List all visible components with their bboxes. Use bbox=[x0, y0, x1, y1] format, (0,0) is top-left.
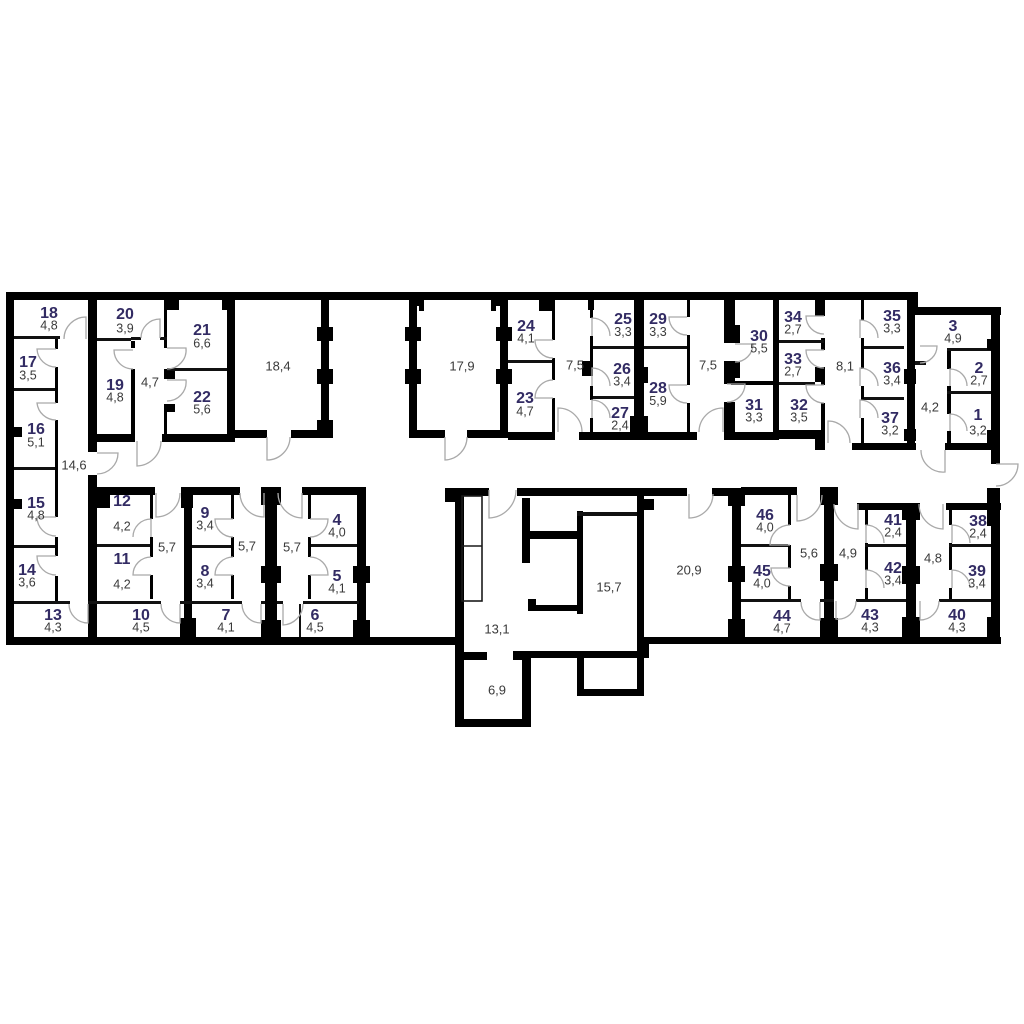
svg-text:11: 11 bbox=[114, 551, 131, 568]
svg-text:4,1: 4,1 bbox=[517, 332, 534, 346]
svg-text:5,6: 5,6 bbox=[193, 403, 210, 417]
svg-text:4,7: 4,7 bbox=[773, 622, 790, 636]
svg-text:3,4: 3,4 bbox=[884, 574, 901, 588]
svg-text:2,7: 2,7 bbox=[784, 323, 801, 337]
svg-text:4,0: 4,0 bbox=[756, 521, 773, 535]
svg-text:3,4: 3,4 bbox=[883, 374, 900, 388]
svg-text:2,7: 2,7 bbox=[970, 374, 987, 388]
svg-text:3,5: 3,5 bbox=[790, 411, 807, 425]
svg-text:3,2: 3,2 bbox=[881, 424, 898, 438]
svg-text:4,0: 4,0 bbox=[753, 577, 770, 591]
svg-text:2,4: 2,4 bbox=[884, 526, 901, 540]
svg-text:2,4: 2,4 bbox=[611, 419, 628, 433]
svg-text:18,4: 18,4 bbox=[265, 359, 290, 374]
svg-text:3,3: 3,3 bbox=[649, 325, 666, 339]
svg-text:4,9: 4,9 bbox=[839, 546, 857, 561]
svg-text:4,8: 4,8 bbox=[40, 319, 57, 333]
svg-text:2,4: 2,4 bbox=[969, 527, 986, 541]
svg-text:4,1: 4,1 bbox=[328, 582, 345, 596]
svg-text:4,5: 4,5 bbox=[306, 621, 323, 635]
svg-text:8,1: 8,1 bbox=[836, 359, 854, 374]
svg-text:20,9: 20,9 bbox=[676, 563, 701, 578]
svg-text:5,1: 5,1 bbox=[27, 436, 44, 450]
svg-text:4,2: 4,2 bbox=[113, 520, 130, 534]
svg-text:4,7: 4,7 bbox=[516, 405, 533, 419]
svg-text:3,9: 3,9 bbox=[116, 322, 133, 336]
svg-text:5,7: 5,7 bbox=[283, 540, 301, 555]
svg-text:3,4: 3,4 bbox=[968, 577, 985, 591]
svg-text:4,0: 4,0 bbox=[328, 526, 345, 540]
svg-text:3,2: 3,2 bbox=[969, 424, 986, 438]
svg-text:3,4: 3,4 bbox=[613, 375, 630, 389]
svg-text:4,8: 4,8 bbox=[106, 391, 123, 405]
svg-text:1: 1 bbox=[974, 407, 983, 424]
svg-text:7,5: 7,5 bbox=[699, 358, 717, 373]
svg-text:2,7: 2,7 bbox=[784, 365, 801, 379]
svg-text:4,9: 4,9 bbox=[944, 332, 961, 346]
svg-text:5,7: 5,7 bbox=[238, 539, 256, 554]
svg-text:4,3: 4,3 bbox=[948, 621, 965, 635]
svg-text:3,3: 3,3 bbox=[614, 325, 631, 339]
svg-text:4,2: 4,2 bbox=[113, 578, 130, 592]
svg-text:6,6: 6,6 bbox=[193, 337, 210, 351]
svg-text:4,5: 4,5 bbox=[132, 621, 149, 635]
svg-text:5,6: 5,6 bbox=[800, 546, 818, 561]
svg-text:5,9: 5,9 bbox=[649, 394, 666, 408]
svg-text:13,1: 13,1 bbox=[484, 622, 509, 637]
svg-text:4,1: 4,1 bbox=[217, 621, 234, 635]
svg-text:3,3: 3,3 bbox=[745, 411, 762, 425]
svg-text:6,9: 6,9 bbox=[488, 683, 506, 698]
svg-text:4,3: 4,3 bbox=[44, 621, 61, 635]
svg-text:20: 20 bbox=[116, 306, 134, 323]
svg-text:4,3: 4,3 bbox=[861, 621, 878, 635]
svg-text:3,6: 3,6 bbox=[18, 576, 35, 590]
svg-text:3,3: 3,3 bbox=[883, 322, 900, 336]
svg-text:4,2: 4,2 bbox=[921, 400, 939, 415]
svg-text:7,5: 7,5 bbox=[566, 358, 584, 373]
svg-text:15,7: 15,7 bbox=[596, 580, 621, 595]
svg-text:4,8: 4,8 bbox=[27, 509, 44, 523]
svg-text:3,4: 3,4 bbox=[196, 519, 213, 533]
svg-text:14,6: 14,6 bbox=[61, 458, 86, 473]
svg-text:4,7: 4,7 bbox=[141, 375, 159, 390]
svg-text:3,4: 3,4 bbox=[196, 577, 213, 591]
svg-text:12: 12 bbox=[113, 493, 131, 510]
svg-text:3,5: 3,5 bbox=[19, 369, 36, 383]
svg-text:17,9: 17,9 bbox=[449, 359, 474, 374]
svg-text:5,7: 5,7 bbox=[158, 540, 176, 555]
svg-text:4,8: 4,8 bbox=[924, 551, 942, 566]
svg-text:5,5: 5,5 bbox=[750, 342, 767, 356]
